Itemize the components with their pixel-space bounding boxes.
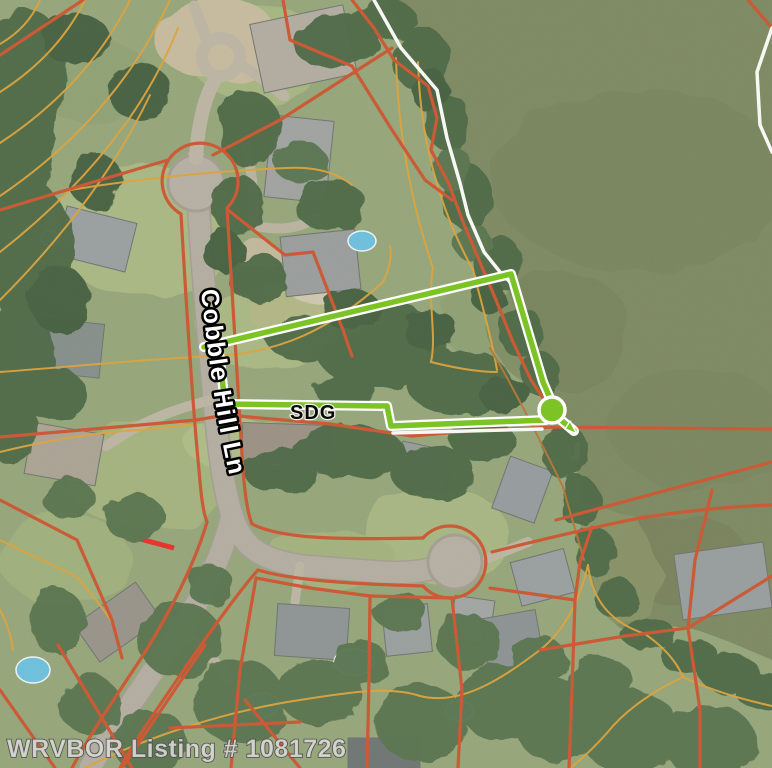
parcel-code-label: SDG [290, 402, 336, 424]
aerial-parcel-map: Cobble Hill Ln SDG WRVBOR Listing # 1081… [0, 0, 772, 768]
listing-watermark: WRVBOR Listing # 1081726 [7, 735, 346, 763]
photo-grain [0, 0, 772, 768]
selected-parcel-corner-marker [539, 397, 565, 423]
map-canvas: Cobble Hill Ln SDG WRVBOR Listing # 1081… [0, 0, 772, 768]
